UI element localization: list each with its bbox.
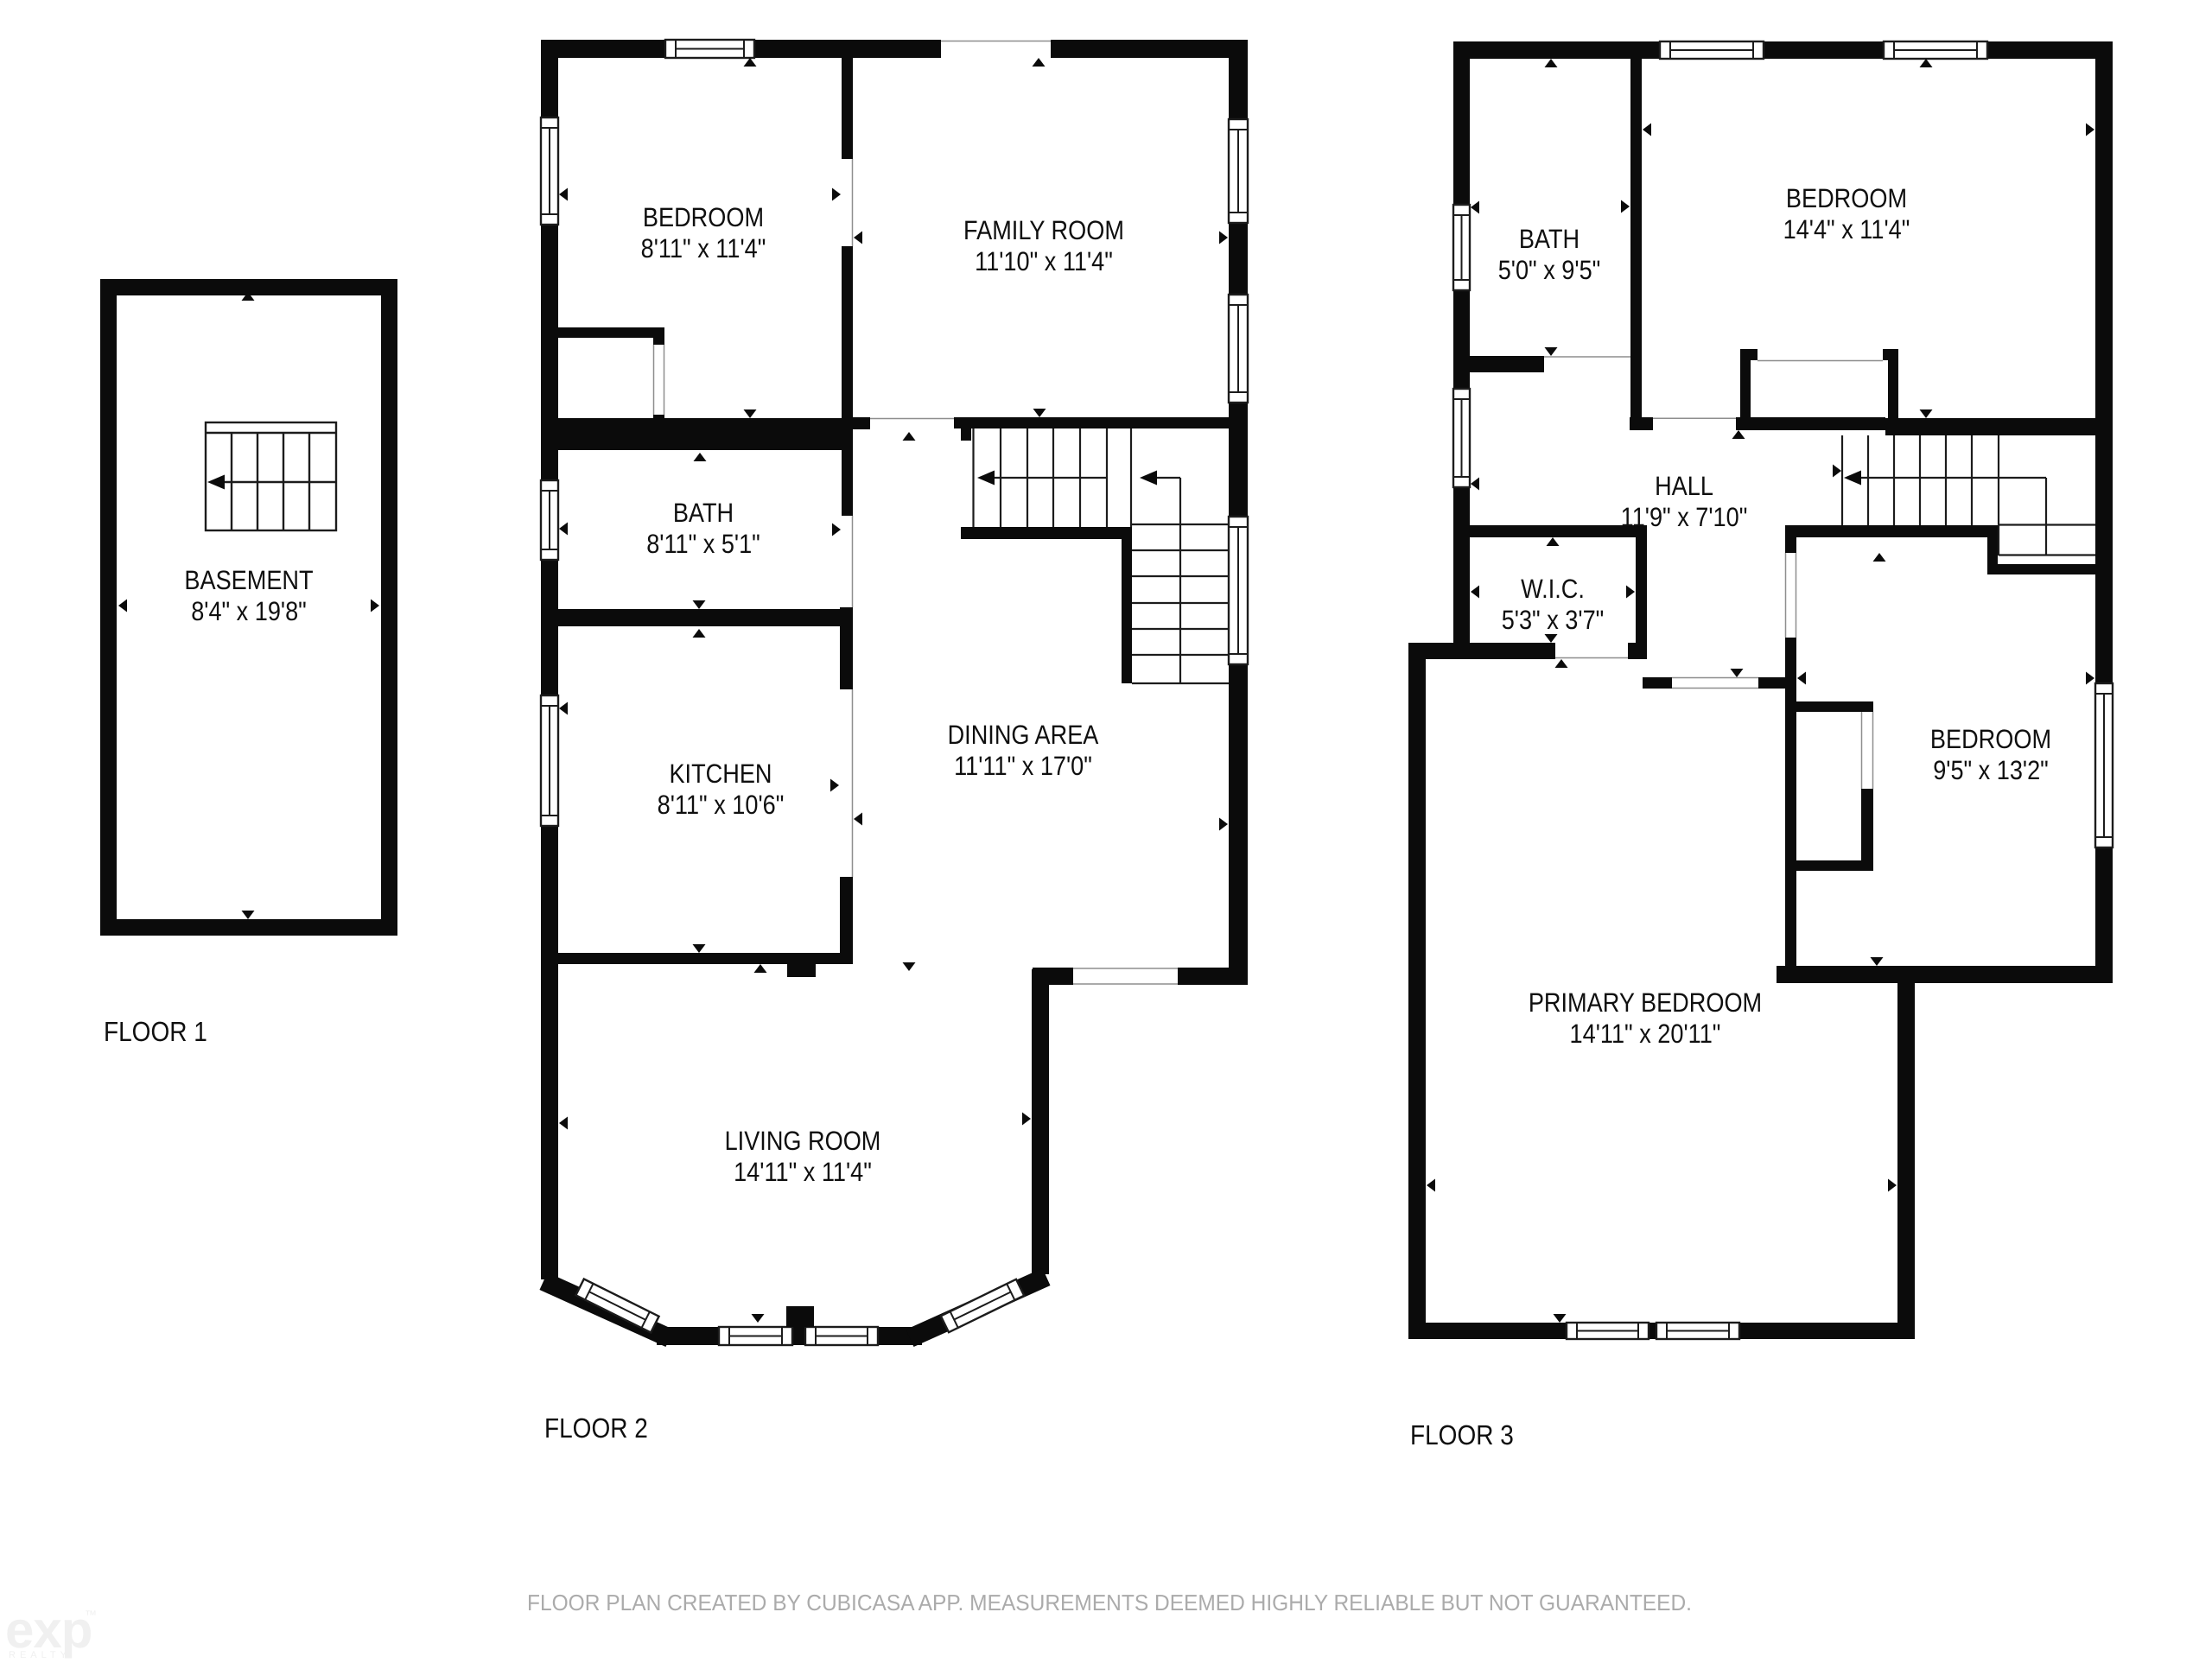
svg-text:5'3" x 3'7": 5'3" x 3'7": [1502, 605, 1605, 635]
svg-text:8'11" x 5'1": 8'11" x 5'1": [646, 529, 760, 559]
svg-text:™: ™: [85, 1608, 97, 1622]
svg-text:11'9" x 7'10": 11'9" x 7'10": [1621, 502, 1748, 532]
svg-text:FLOOR 2: FLOOR 2: [544, 1412, 648, 1444]
svg-text:BASEMENT: BASEMENT: [184, 565, 313, 595]
svg-text:11'11" x 17'0": 11'11" x 17'0": [954, 751, 1092, 781]
svg-text:14'11" x 11'4": 14'11" x 11'4": [734, 1157, 872, 1187]
svg-text:9'5" x 13'2": 9'5" x 13'2": [1933, 755, 2049, 785]
svg-text:REALTY: REALTY: [9, 1650, 71, 1659]
svg-text:8'11" x 10'6": 8'11" x 10'6": [658, 790, 785, 820]
svg-text:11'10" x 11'4": 11'10" x 11'4": [975, 246, 1113, 276]
svg-text:PRIMARY BEDROOM: PRIMARY BEDROOM: [1529, 987, 1762, 1018]
svg-text:DINING AREA: DINING AREA: [948, 720, 1099, 750]
svg-text:FLOOR 3: FLOOR 3: [1410, 1419, 1514, 1450]
svg-text:FLOOR PLAN CREATED BY CUBICASA: FLOOR PLAN CREATED BY CUBICASA APP. MEAS…: [527, 1590, 1692, 1615]
svg-text:KITCHEN: KITCHEN: [669, 759, 772, 789]
svg-text:FAMILY ROOM: FAMILY ROOM: [963, 215, 1124, 245]
svg-text:LIVING ROOM: LIVING ROOM: [725, 1126, 881, 1156]
svg-text:BEDROOM: BEDROOM: [1786, 183, 1907, 213]
svg-text:5'0" x 9'5": 5'0" x 9'5": [1498, 255, 1601, 285]
svg-text:HALL: HALL: [1655, 471, 1713, 501]
svg-text:8'4" x 19'8": 8'4" x 19'8": [191, 596, 307, 626]
svg-text:8'11" x 11'4": 8'11" x 11'4": [641, 233, 766, 263]
svg-text:BATH: BATH: [1519, 224, 1580, 254]
svg-text:14'4" x 11'4": 14'4" x 11'4": [1783, 214, 1910, 244]
svg-text:BEDROOM: BEDROOM: [643, 202, 764, 232]
svg-text:BATH: BATH: [673, 498, 734, 528]
svg-text:BEDROOM: BEDROOM: [1930, 724, 2051, 754]
svg-text:W.I.C.: W.I.C.: [1521, 574, 1585, 604]
svg-text:FLOOR 1: FLOOR 1: [104, 1016, 207, 1047]
svg-text:14'11" x 20'11": 14'11" x 20'11": [1570, 1019, 1721, 1049]
